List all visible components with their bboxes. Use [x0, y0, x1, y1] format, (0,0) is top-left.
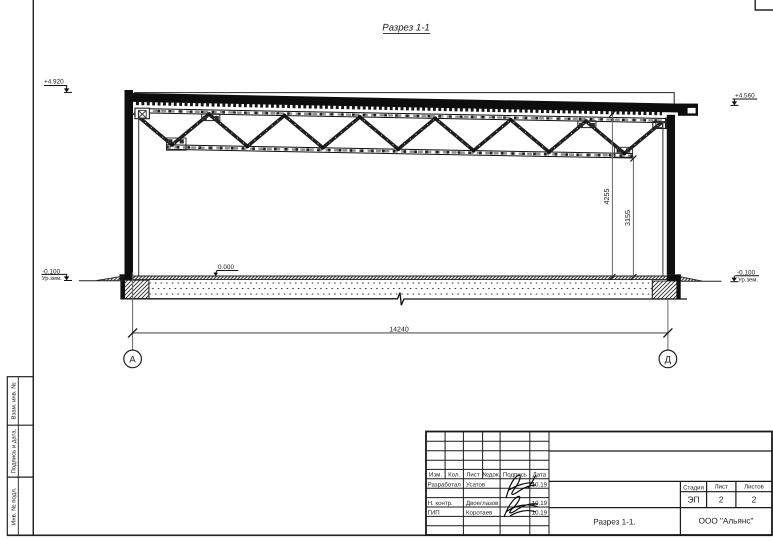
svg-text:Изм.: Изм.	[429, 472, 442, 479]
svg-text:Ур.зем.: Ур.зем.	[738, 277, 758, 284]
svg-text:Усатов: Усатов	[466, 481, 485, 488]
svg-text:Лист: Лист	[715, 484, 728, 491]
svg-text:Разработал: Разработал	[428, 481, 462, 488]
svg-text:Кол.: Кол.	[448, 472, 460, 479]
svg-text:Ур.зем.: Ур.зем.	[42, 275, 62, 282]
svg-text:Взам. инв. №: Взам. инв. №	[11, 382, 18, 420]
svg-text:Н. контр.: Н. контр.	[428, 500, 453, 507]
svg-text:Инв. № подл.: Инв. № подл.	[11, 487, 18, 525]
svg-text:Д: Д	[665, 354, 672, 365]
svg-text:Подпись и дата.: Подпись и дата.	[11, 428, 18, 473]
svg-text:№док.: №док.	[482, 472, 500, 479]
svg-text:ООО "Альянс": ООО "Альянс"	[699, 517, 754, 526]
svg-text:10.19: 10.19	[532, 509, 548, 516]
svg-text:2: 2	[719, 495, 724, 505]
svg-text:+4.920: +4.920	[44, 79, 64, 86]
svg-text:0.000: 0.000	[218, 264, 234, 271]
svg-text:Коротаев: Коротаев	[466, 509, 492, 516]
svg-text:2: 2	[752, 495, 757, 505]
svg-text:А: А	[129, 354, 136, 365]
svg-text:Разрез 1-1: Разрез 1-1	[382, 23, 430, 34]
svg-text:3155: 3155	[623, 210, 632, 226]
svg-text:+4.560: +4.560	[735, 92, 755, 99]
svg-text:Разрез 1-1.: Разрез 1-1.	[593, 518, 635, 527]
svg-text:14240: 14240	[389, 327, 409, 334]
svg-text:Лист: Лист	[466, 472, 479, 479]
svg-text:ЭП: ЭП	[687, 495, 699, 505]
svg-text:Двоеглазов: Двоеглазов	[466, 500, 498, 507]
svg-text:ГИП: ГИП	[428, 509, 440, 516]
svg-text:4255: 4255	[602, 189, 611, 205]
svg-text:Листов: Листов	[744, 484, 764, 491]
svg-text:Стадия: Стадия	[683, 484, 704, 491]
